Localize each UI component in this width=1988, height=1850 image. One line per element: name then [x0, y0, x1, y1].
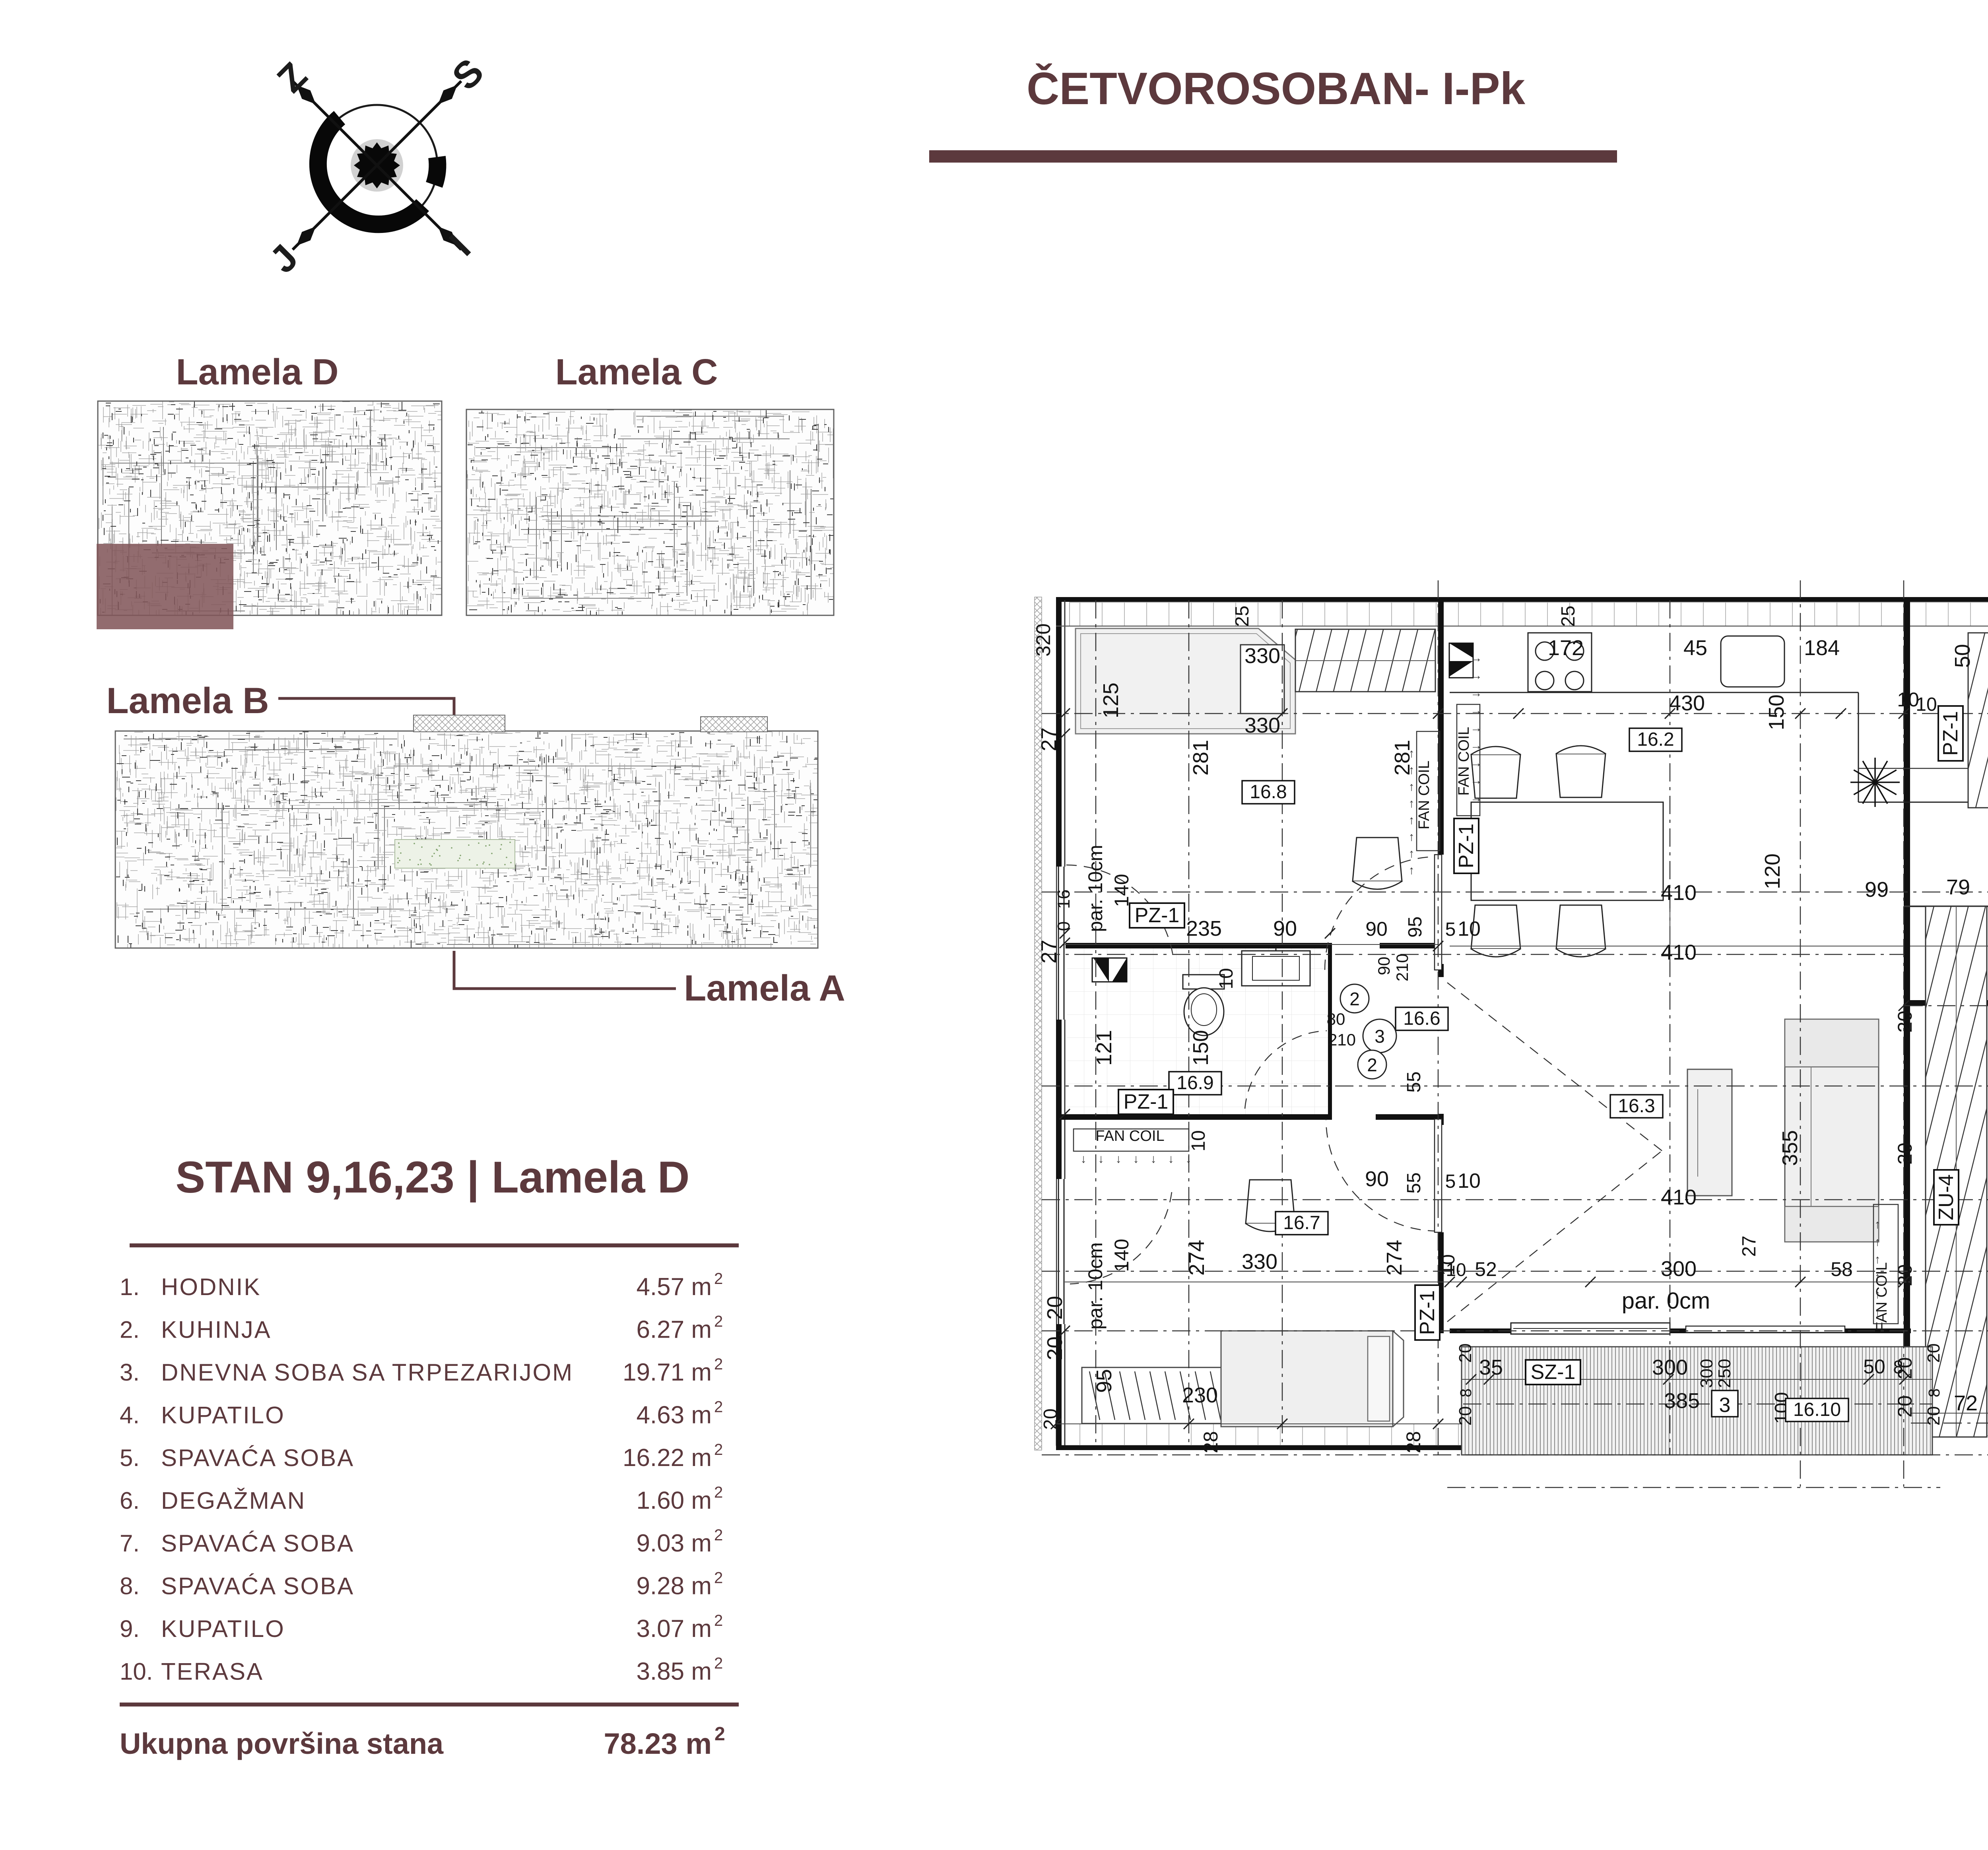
svg-text:2: 2 — [714, 1569, 723, 1587]
svg-text:FAN COIL: FAN COIL — [1456, 727, 1472, 795]
svg-text:140: 140 — [1110, 874, 1133, 907]
svg-text:28: 28 — [1200, 1431, 1222, 1453]
svg-text:10.: 10. — [120, 1658, 153, 1685]
svg-text:250: 250 — [1715, 1359, 1734, 1388]
svg-text:2: 2 — [714, 1313, 723, 1330]
svg-text:27: 27 — [1739, 1235, 1760, 1257]
svg-text:150: 150 — [1765, 694, 1788, 730]
svg-text:55: 55 — [1404, 1172, 1425, 1193]
svg-text:50: 50 — [1863, 1356, 1885, 1378]
svg-text:2.: 2. — [120, 1317, 140, 1343]
svg-text:8: 8 — [1457, 1388, 1475, 1397]
svg-text:3: 3 — [1375, 1026, 1385, 1047]
svg-text:50: 50 — [1951, 644, 1974, 668]
svg-text:ČETVOROSOBAN- I-Pk: ČETVOROSOBAN- I-Pk — [1027, 64, 1526, 114]
svg-text:2: 2 — [714, 1724, 725, 1745]
svg-text:4.57 m: 4.57 m — [636, 1273, 712, 1301]
svg-text:125: 125 — [1099, 683, 1123, 718]
svg-text:3.07 m: 3.07 m — [636, 1615, 712, 1643]
svg-text:16.8: 16.8 — [1250, 781, 1287, 803]
svg-text:↑: ↑ — [1875, 1305, 1881, 1319]
svg-text:par. 10cm: par. 10cm — [1084, 1242, 1107, 1330]
svg-text:FAN COIL: FAN COIL — [1095, 1128, 1164, 1144]
svg-text:10: 10 — [1458, 917, 1481, 941]
svg-text:72: 72 — [1954, 1391, 1978, 1415]
svg-text:→: → — [1470, 791, 1482, 805]
svg-text:2: 2 — [714, 1526, 723, 1544]
svg-text:55: 55 — [1404, 1071, 1425, 1092]
svg-text:TERASA: TERASA — [161, 1658, 264, 1685]
svg-text:27: 27 — [1037, 940, 1061, 964]
svg-text:→: → — [1470, 756, 1482, 770]
svg-text:90: 90 — [1375, 957, 1393, 975]
svg-text:par. 10cm: par. 10cm — [1084, 845, 1107, 932]
svg-text:0: 0 — [1054, 921, 1074, 931]
svg-text:16.6: 16.6 — [1403, 1008, 1440, 1029]
svg-text:KUPATILO: KUPATILO — [161, 1615, 285, 1642]
svg-text:1.60 m: 1.60 m — [636, 1487, 712, 1515]
svg-text:2: 2 — [714, 1356, 723, 1373]
svg-text:SPAVAĆA SOBA: SPAVAĆA SOBA — [161, 1573, 354, 1600]
svg-text:10: 10 — [1897, 688, 1919, 711]
svg-text:FAN COIL: FAN COIL — [1416, 760, 1433, 829]
svg-text:9.03 m: 9.03 m — [636, 1530, 712, 1557]
svg-text:PZ-1: PZ-1 — [1939, 711, 1962, 756]
svg-text:DEGAŽMAN: DEGAŽMAN — [161, 1487, 306, 1514]
svg-text:2: 2 — [714, 1270, 723, 1288]
svg-text:281: 281 — [1189, 740, 1213, 776]
svg-text:20: 20 — [1043, 1336, 1067, 1360]
svg-text:↑: ↑ — [1409, 830, 1415, 844]
svg-text:↓: ↓ — [1186, 1152, 1192, 1165]
svg-text:6.27 m: 6.27 m — [636, 1316, 712, 1344]
svg-text:274: 274 — [1382, 1240, 1406, 1276]
svg-text:↑: ↑ — [1875, 1253, 1881, 1266]
svg-text:9.: 9. — [120, 1615, 140, 1642]
svg-text:20: 20 — [1894, 1010, 1916, 1033]
svg-text:Lamela C: Lamela C — [555, 352, 718, 392]
svg-text:28: 28 — [1402, 1431, 1425, 1453]
svg-text:Ukupna površina stana: Ukupna površina stana — [120, 1727, 444, 1760]
svg-text:↑: ↑ — [1875, 1288, 1881, 1301]
svg-text:20: 20 — [1924, 1406, 1943, 1426]
svg-text:Lamela A: Lamela A — [684, 968, 845, 1008]
svg-text:↑: ↑ — [1409, 764, 1415, 777]
svg-text:355: 355 — [1778, 1130, 1802, 1166]
svg-text:25: 25 — [1232, 605, 1253, 626]
svg-text:↓: ↓ — [1168, 1152, 1174, 1165]
svg-text:4.: 4. — [120, 1402, 140, 1429]
svg-text:330: 330 — [1244, 644, 1280, 668]
svg-text:150: 150 — [1189, 1030, 1213, 1066]
svg-text:25: 25 — [1558, 605, 1579, 626]
svg-text:20: 20 — [1924, 1344, 1943, 1363]
svg-text:↓: ↓ — [1081, 1152, 1087, 1165]
svg-text:↑: ↑ — [1875, 1235, 1881, 1249]
svg-text:STAN 9,16,23 | Lamela D: STAN 9,16,23 | Lamela D — [176, 1152, 690, 1202]
svg-text:5.: 5. — [120, 1445, 140, 1471]
svg-text:↑: ↑ — [1409, 864, 1415, 877]
svg-text:16.10: 16.10 — [1793, 1399, 1841, 1420]
svg-text:2: 2 — [1349, 989, 1360, 1009]
svg-text:PZ-1: PZ-1 — [1416, 1290, 1439, 1335]
svg-text:→: → — [1470, 774, 1482, 787]
svg-text:KUHINJA: KUHINJA — [161, 1317, 272, 1343]
svg-text:Lamela D: Lamela D — [176, 352, 338, 392]
svg-text:↑: ↑ — [1409, 797, 1415, 810]
svg-text:5: 5 — [1445, 1171, 1456, 1192]
svg-text:19.71 m: 19.71 m — [623, 1359, 712, 1386]
svg-text:→: → — [1470, 652, 1482, 665]
svg-text:SZ-1: SZ-1 — [1531, 1361, 1576, 1384]
svg-text:300: 300 — [1697, 1359, 1716, 1388]
svg-text:2: 2 — [714, 1612, 723, 1629]
svg-text:95: 95 — [1092, 1369, 1116, 1393]
svg-text:↑: ↑ — [1409, 747, 1415, 760]
svg-text:2: 2 — [1367, 1055, 1377, 1075]
svg-text:300: 300 — [1652, 1356, 1688, 1379]
svg-text:2: 2 — [714, 1655, 723, 1672]
svg-text:ZU-4: ZU-4 — [1935, 1174, 1958, 1220]
svg-text:274: 274 — [1185, 1240, 1209, 1276]
svg-text:HODNIK: HODNIK — [161, 1274, 261, 1300]
svg-text:↑: ↑ — [1409, 780, 1415, 793]
svg-text:320: 320 — [1032, 623, 1054, 656]
svg-text:9.28 m: 9.28 m — [636, 1573, 712, 1600]
svg-text:90: 90 — [1365, 1167, 1389, 1191]
svg-text:20: 20 — [1043, 1296, 1067, 1320]
svg-text:172: 172 — [1548, 636, 1584, 660]
svg-text:16.22 m: 16.22 m — [623, 1444, 712, 1472]
svg-text:80: 80 — [1327, 1010, 1345, 1028]
svg-text:4.63 m: 4.63 m — [636, 1402, 712, 1429]
svg-text:99: 99 — [1865, 878, 1889, 902]
svg-text:SPAVAĆA SOBA: SPAVAĆA SOBA — [161, 1445, 354, 1471]
svg-text:95: 95 — [1405, 916, 1426, 937]
svg-text:20: 20 — [1894, 1395, 1916, 1418]
svg-text:58: 58 — [1831, 1258, 1853, 1280]
svg-text:5: 5 — [1445, 919, 1456, 940]
svg-text:Lamela B: Lamela B — [106, 681, 269, 721]
svg-text:45: 45 — [1683, 636, 1707, 660]
svg-text:↑: ↑ — [1409, 814, 1415, 827]
svg-text:230: 230 — [1182, 1383, 1218, 1407]
svg-text:↓: ↓ — [1116, 1152, 1122, 1165]
svg-text:PZ-1: PZ-1 — [1135, 904, 1180, 927]
svg-text:↓: ↓ — [1151, 1152, 1157, 1165]
svg-text:410: 410 — [1661, 941, 1697, 964]
svg-text:↓: ↓ — [1098, 1152, 1104, 1165]
svg-text:16.3: 16.3 — [1618, 1096, 1655, 1117]
svg-text:20: 20 — [1894, 1142, 1916, 1165]
svg-text:10: 10 — [1188, 1130, 1209, 1151]
svg-text:20: 20 — [1456, 1344, 1475, 1363]
svg-text:10: 10 — [1446, 1259, 1466, 1280]
svg-text:16: 16 — [1054, 890, 1074, 909]
svg-text:3: 3 — [1719, 1394, 1731, 1417]
svg-text:→: → — [1470, 686, 1482, 700]
svg-text:410: 410 — [1661, 1185, 1697, 1209]
svg-text:20: 20 — [1040, 1408, 1061, 1429]
svg-text:120: 120 — [1761, 853, 1784, 889]
svg-text:PZ-1: PZ-1 — [1124, 1090, 1169, 1113]
svg-text:210: 210 — [1393, 954, 1411, 981]
svg-text:121: 121 — [1092, 1030, 1116, 1066]
svg-text:→: → — [1470, 704, 1482, 717]
svg-text:↑: ↑ — [1409, 847, 1415, 860]
svg-text:6.: 6. — [120, 1487, 140, 1514]
svg-text:330: 330 — [1242, 1250, 1277, 1274]
svg-text:DNEVNA SOBA SA TRPEZARIJOM: DNEVNA SOBA SA TRPEZARIJOM — [161, 1359, 573, 1386]
svg-text:2: 2 — [714, 1398, 723, 1416]
svg-text:79: 79 — [1946, 875, 1970, 899]
svg-text:7.: 7. — [120, 1530, 140, 1557]
svg-text:↑: ↑ — [1875, 1270, 1881, 1284]
svg-text:8: 8 — [1893, 1357, 1903, 1377]
svg-text:52: 52 — [1475, 1258, 1497, 1280]
svg-text:3.85 m: 3.85 m — [636, 1658, 712, 1685]
svg-text:430: 430 — [1669, 691, 1705, 715]
svg-text:330: 330 — [1244, 714, 1280, 737]
svg-text:8.: 8. — [120, 1573, 140, 1600]
svg-text:210: 210 — [1328, 1030, 1356, 1049]
svg-text:10: 10 — [1216, 968, 1237, 989]
svg-text:300: 300 — [1661, 1257, 1697, 1281]
svg-text:235: 235 — [1186, 917, 1222, 941]
svg-text:35: 35 — [1479, 1356, 1503, 1379]
svg-text:→: → — [1470, 739, 1482, 752]
svg-text:90: 90 — [1365, 918, 1388, 940]
svg-text:↑: ↑ — [1875, 1218, 1881, 1231]
svg-text:KUPATILO: KUPATILO — [161, 1402, 285, 1429]
svg-text:2: 2 — [714, 1484, 723, 1501]
svg-text:8: 8 — [1926, 1388, 1943, 1397]
svg-text:10: 10 — [1458, 1169, 1481, 1193]
svg-text:27: 27 — [1037, 727, 1061, 751]
svg-text:→: → — [1470, 669, 1482, 682]
svg-text:2: 2 — [714, 1441, 723, 1458]
svg-text:20: 20 — [1456, 1406, 1475, 1426]
svg-text:16.7: 16.7 — [1283, 1212, 1320, 1233]
svg-text:par. 0cm: par. 0cm — [1622, 1288, 1710, 1314]
svg-text:16.2: 16.2 — [1637, 729, 1674, 750]
svg-text:140: 140 — [1110, 1239, 1133, 1272]
svg-text:→: → — [1470, 721, 1482, 735]
svg-text:385: 385 — [1664, 1389, 1700, 1413]
svg-text:3.: 3. — [120, 1359, 140, 1386]
svg-text:184: 184 — [1804, 636, 1840, 660]
svg-text:20: 20 — [1894, 1264, 1916, 1286]
svg-text:PZ-1: PZ-1 — [1455, 824, 1478, 869]
svg-text:↓: ↓ — [1133, 1152, 1139, 1165]
svg-text:90: 90 — [1273, 917, 1297, 941]
svg-text:16.9: 16.9 — [1176, 1072, 1213, 1094]
svg-text:410: 410 — [1661, 881, 1697, 905]
svg-text:78.23 m: 78.23 m — [604, 1727, 712, 1760]
svg-text:1.: 1. — [120, 1274, 140, 1300]
svg-text:SPAVAĆA SOBA: SPAVAĆA SOBA — [161, 1530, 354, 1557]
